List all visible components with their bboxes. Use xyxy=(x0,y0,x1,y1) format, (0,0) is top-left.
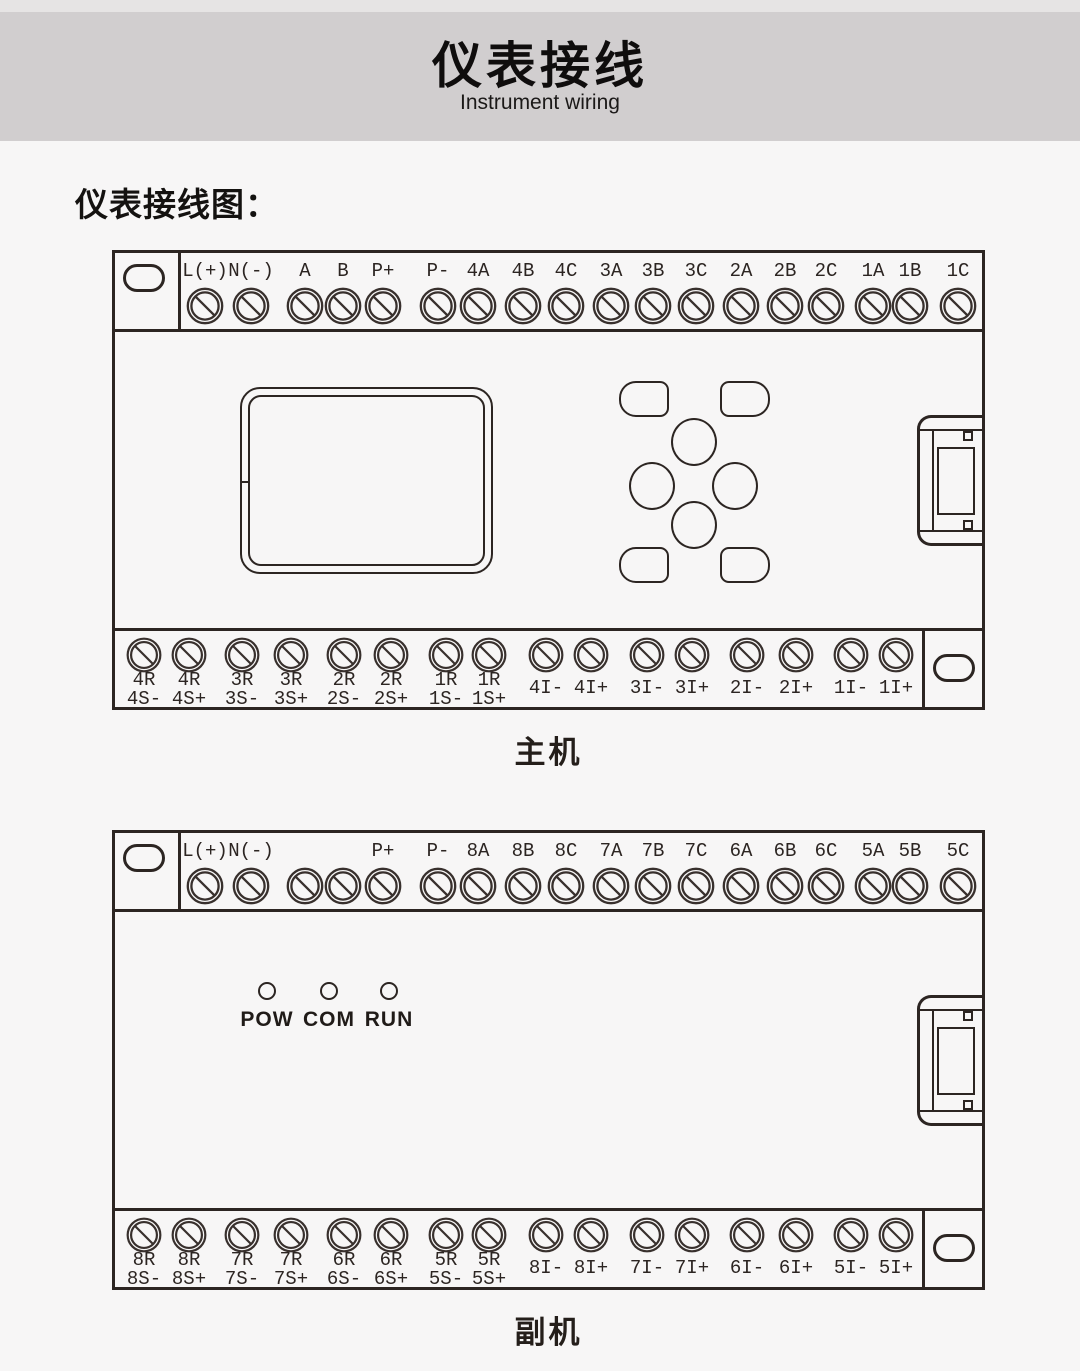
mounting-slot-icon xyxy=(933,654,975,682)
connector-slot xyxy=(937,447,975,515)
terminal-screw-icon xyxy=(806,866,846,906)
terminal-screw-icon xyxy=(877,1216,915,1254)
main-unit-diagram: L(+)N(-)ABP+P-4A4B4C3A3B3C2A2B2C1A1B1C4R… xyxy=(112,250,985,710)
terminal-screw-icon xyxy=(572,1216,610,1254)
connector-pin-notch xyxy=(963,520,973,530)
terminal-screw-icon xyxy=(721,286,761,326)
connector-pin-notch xyxy=(963,1100,973,1110)
terminal-strip-top: L(+)N(-)P+P-8A8B8C7A7B7C6A6B6C5A5B5C xyxy=(112,830,985,912)
terminal-screw-icon xyxy=(503,286,543,326)
terminal-screw-icon xyxy=(765,866,805,906)
terminal-screw-icon xyxy=(628,1216,666,1254)
terminal-screw-icon xyxy=(832,1216,870,1254)
connector-pin-notch xyxy=(963,431,973,441)
page-title: 仪表接线 xyxy=(432,38,648,94)
terminal-screw-icon xyxy=(633,866,673,906)
terminal-screw-icon xyxy=(676,286,716,326)
terminal-label-1I+: 1I+ xyxy=(861,679,931,698)
terminal-screw-icon xyxy=(777,1216,815,1254)
keypad-round-key xyxy=(629,462,675,510)
terminal-screw-icon xyxy=(231,866,271,906)
terminal-screw-icon xyxy=(853,286,893,326)
auxiliary-unit-caption: 副机 xyxy=(112,1307,985,1352)
terminal-screw-icon xyxy=(938,866,978,906)
led-pow-icon xyxy=(258,982,276,1000)
keypad-corner-key xyxy=(619,381,669,417)
terminal-screw-icon xyxy=(458,866,498,906)
connector-edge-line xyxy=(920,530,982,532)
device-body: POWCOMRUN xyxy=(112,909,985,1211)
terminal-screw-icon xyxy=(418,286,458,326)
terminal-strip-top: L(+)N(-)ABP+P-4A4B4C3A3B3C2A2B2C1A1B1C xyxy=(112,250,985,332)
terminal-screw-icon xyxy=(323,866,363,906)
terminal-screw-icon xyxy=(546,286,586,326)
terminal-screw-icon xyxy=(853,866,893,906)
terminal-screw-icon xyxy=(363,286,403,326)
mounting-slot-cell xyxy=(922,628,985,710)
terminal-screw-icon xyxy=(458,286,498,326)
connector-slot xyxy=(937,1027,975,1095)
terminal-screw-icon xyxy=(231,286,271,326)
terminal-screw-icon xyxy=(527,1216,565,1254)
keypad-corner-key xyxy=(720,547,770,583)
connector-pin-notch xyxy=(963,1011,973,1021)
terminal-screw-icon xyxy=(673,1216,711,1254)
terminal-screw-icon xyxy=(938,286,978,326)
connector-edge-line xyxy=(932,429,934,532)
terminal-screw-icon xyxy=(503,866,543,906)
terminal-screw-icon xyxy=(591,866,631,906)
mounting-slot-icon xyxy=(933,1234,975,1262)
terminal-screw-icon xyxy=(363,866,403,906)
connector-edge-line xyxy=(920,1110,982,1112)
banner: 仪表接线 Instrument wiring xyxy=(0,12,1080,141)
terminal-label-5I+: 5I+ xyxy=(861,1259,931,1278)
auxiliary-unit-diagram: L(+)N(-)P+P-8A8B8C7A7B7C6A6B6C5A5B5CPOWC… xyxy=(112,830,985,1290)
page: 仪表接线 Instrument wiring 仪表接线图： L(+)N(-)AB… xyxy=(0,0,1080,1371)
terminal-screw-icon xyxy=(890,866,930,906)
terminal-screw-icon xyxy=(285,866,325,906)
terminal-screw-icon xyxy=(877,636,915,674)
terminal-screw-icon xyxy=(628,636,666,674)
led-com-icon xyxy=(320,982,338,1000)
terminal-screw-icon xyxy=(728,636,766,674)
keypad-round-key xyxy=(671,501,717,549)
mounting-slot-icon xyxy=(123,844,165,872)
side-connector-icon xyxy=(917,415,982,546)
connector-edge-line xyxy=(932,1009,934,1112)
terminal-strip-bottom: 4R4S-4R4S+3R3S-3R3S+2R2S-2R2S+1R1S-1R1S+… xyxy=(112,628,925,710)
mounting-slot-cell xyxy=(922,1208,985,1290)
terminal-screw-icon xyxy=(185,286,225,326)
terminal-screw-icon xyxy=(673,636,711,674)
terminal-strip-bottom: 8R8S-8R8S+7R7S-7R7S+6R6S-6R6S+5R5S-5R5S+… xyxy=(112,1208,925,1290)
terminal-screw-icon xyxy=(185,866,225,906)
led-label-run: RUN xyxy=(349,1008,429,1032)
keypad-round-key xyxy=(712,462,758,510)
page-subtitle: Instrument wiring xyxy=(460,91,620,115)
section-heading: 仪表接线图： xyxy=(75,178,279,226)
terminal-screw-icon xyxy=(572,636,610,674)
terminal-screw-icon xyxy=(285,286,325,326)
terminal-screw-icon xyxy=(527,636,565,674)
terminal-label-1C: 1C xyxy=(923,258,993,284)
terminal-screw-icon xyxy=(418,866,458,906)
terminal-label-N(-): N(-) xyxy=(216,838,286,864)
lcd-display xyxy=(240,387,493,574)
terminal-screw-icon xyxy=(323,286,363,326)
terminal-screw-icon xyxy=(806,286,846,326)
terminal-screw-icon xyxy=(832,636,870,674)
terminal-screw-icon xyxy=(546,866,586,906)
display-bezel-mark xyxy=(240,481,250,483)
lcd-display-inner xyxy=(248,395,485,566)
terminal-screw-icon xyxy=(765,286,805,326)
side-connector-icon xyxy=(917,995,982,1126)
device-body xyxy=(112,329,985,631)
top-edge-strip xyxy=(0,0,1080,12)
terminal-screw-icon xyxy=(721,866,761,906)
terminal-label-5C: 5C xyxy=(923,838,993,864)
terminal-screw-icon xyxy=(777,636,815,674)
terminal-screw-icon xyxy=(633,286,673,326)
terminal-screw-icon xyxy=(728,1216,766,1254)
main-unit-caption: 主机 xyxy=(112,727,985,772)
mounting-slot-icon xyxy=(123,264,165,292)
keypad-corner-key xyxy=(619,547,669,583)
terminal-screw-icon xyxy=(591,286,631,326)
terminal-screw-icon xyxy=(676,866,716,906)
keypad-corner-key xyxy=(720,381,770,417)
keypad-round-key xyxy=(671,418,717,466)
led-run-icon xyxy=(380,982,398,1000)
terminal-screw-icon xyxy=(890,286,930,326)
